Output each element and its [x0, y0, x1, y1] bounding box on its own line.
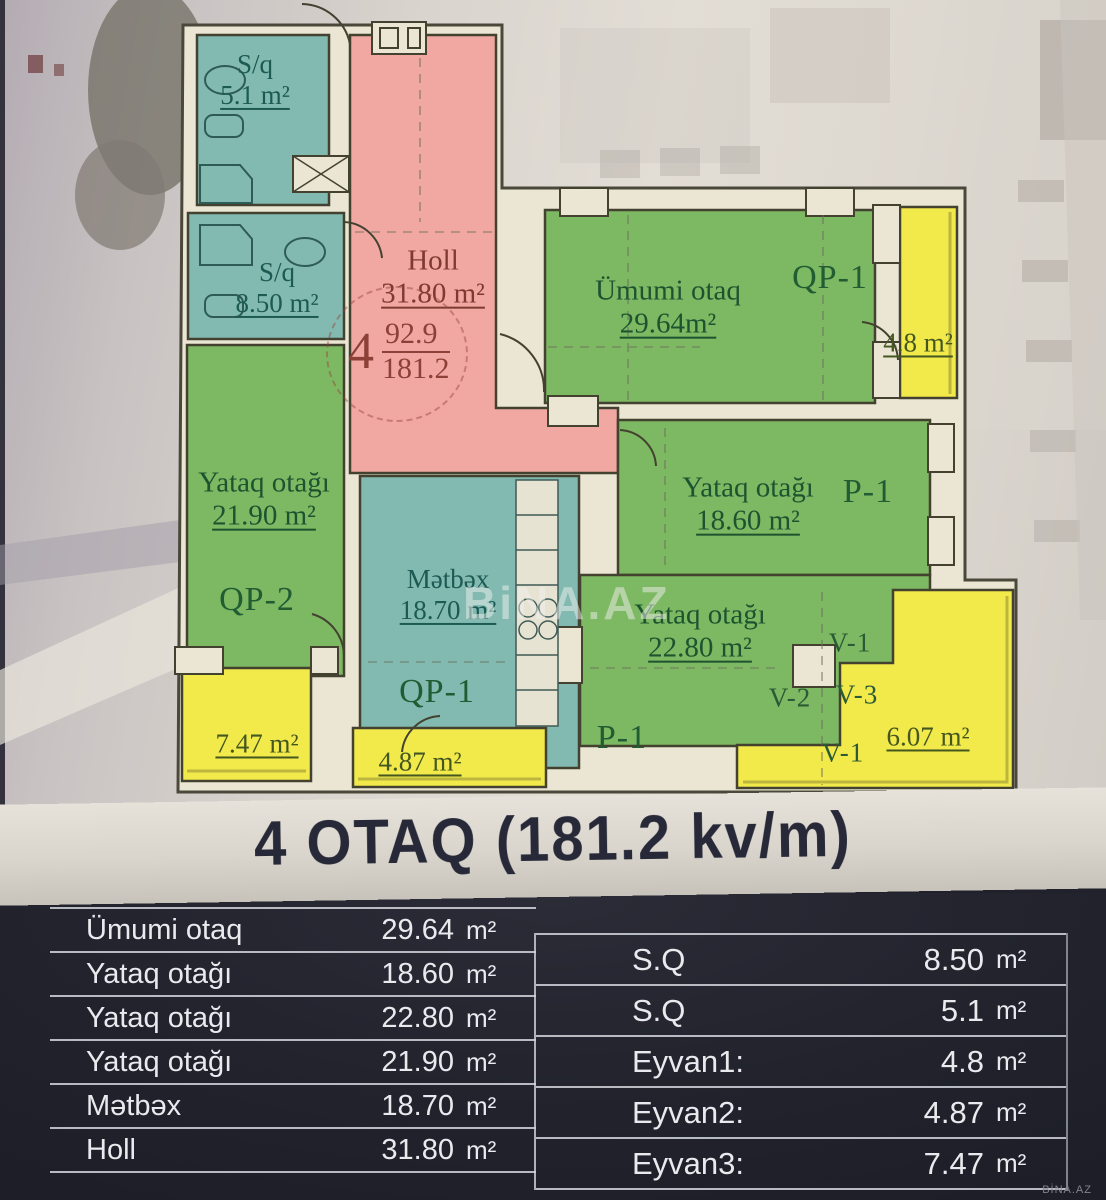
table-row: Eyvan1: 4.8 m² [536, 1037, 1066, 1088]
table-row: S.Q 8.50 m² [536, 933, 1066, 986]
badge-numerator: 92.9 [382, 318, 450, 353]
label-bedroom-left: Yataq otağı 21.90 m² [198, 467, 330, 534]
marker-qp2: QP-2 [219, 581, 295, 619]
title-band: 4 OTAQ (181.2 kv/m) [0, 787, 1106, 906]
marker-v2: V-2 [769, 683, 812, 714]
balcony-top-right-shape [900, 207, 957, 398]
label-bath-large: S/q 8.50 m² [235, 257, 318, 319]
marker-p1-bottom: P-1 [597, 719, 647, 757]
summary-table-left: Ümumi otaq 29.64 m² Yataq otağı 18.60 m²… [50, 907, 536, 1173]
marker-qp1-top: QP-1 [792, 259, 868, 297]
table-row: S.Q 5.1 m² [536, 986, 1066, 1037]
floor-plan-svg [0, 0, 1106, 815]
marker-v3: V-3 [836, 680, 879, 711]
table-row: Yataq otağı 18.60 m² [50, 953, 536, 997]
watermark-center: BiNA.AZ [463, 576, 671, 630]
table-row: Yataq otağı 21.90 m² [50, 1041, 536, 1085]
summary-panel: Ümumi otaq 29.64 m² Yataq otağı 18.60 m²… [0, 893, 1106, 1200]
table-row: Eyvan3: 7.47 m² [536, 1139, 1066, 1190]
table-row: Yataq otağı 22.80 m² [50, 997, 536, 1041]
table-row: Mətbəx 18.70 m² [50, 1085, 536, 1129]
marker-qp1-kitchen: QP-1 [399, 673, 475, 711]
label-balcony-bottom-mid: 4.87 m² [378, 746, 461, 777]
marker-p1-mid: P-1 [843, 473, 893, 511]
balcony-bottom-left-shape [182, 668, 311, 781]
label-bedroom-mid: Yataq otağı 18.60 m² [682, 472, 814, 539]
listing-image: S/q 5.1 m² S/q 8.50 m² Holl 31.80 m² Ümu… [0, 0, 1106, 1200]
page-title: 4 OTAQ (181.2 kv/m) [0, 794, 1106, 884]
table-row: Eyvan2: 4.87 m² [536, 1088, 1066, 1139]
marker-v1-lower: V-1 [822, 738, 865, 769]
label-living: Ümumi otaq 29.64m² [595, 275, 741, 342]
label-balcony-top-right: 4.8 m² [883, 327, 953, 358]
summary-table-right: S.Q 8.50 m² S.Q 5.1 m² Eyvan1: 4.8 m² Ey… [534, 933, 1068, 1190]
marker-v1-upper: V-1 [829, 628, 872, 659]
badge-room-count: 4 [348, 322, 374, 381]
label-balcony-bottom-left: 7.47 m² [215, 728, 298, 759]
label-bath-small: S/q 5.1 m² [220, 49, 290, 111]
table-row: Holl 31.80 m² [50, 1129, 536, 1173]
label-balcony-bottom-right: 6.07 m² [886, 721, 969, 752]
badge-denominator: 181.2 [382, 353, 450, 385]
watermark-footer: BİNA.AZ [1042, 1184, 1092, 1196]
apartment-stats-badge: 4 92.9 181.2 [338, 300, 463, 408]
table-row: Ümumi otaq 29.64 m² [50, 907, 536, 953]
